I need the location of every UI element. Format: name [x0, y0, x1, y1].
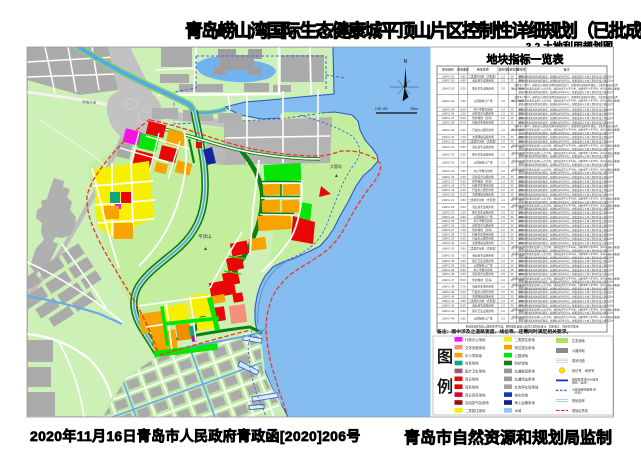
svg-text:1.0: 1.0	[501, 198, 505, 202]
svg-text:2.5: 2.5	[501, 99, 505, 103]
svg-text:200m: 200m	[410, 107, 418, 111]
svg-text:公园绿地与广场: 公园绿地与广场	[474, 215, 493, 219]
svg-text:25: 25	[511, 107, 514, 111]
svg-text:30: 30	[511, 184, 514, 188]
svg-text:行政办公用地: 行政办公用地	[465, 337, 486, 342]
svg-text:建筑退界满足相关规范要求，配建机动车停车位，配套设施与主体工: 建筑退界满足相关规范要求，配建机动车停车位，配套设施与主体工程同步设计建设交付	[518, 311, 614, 315]
svg-text:中小学用地: 中小学用地	[465, 353, 483, 358]
svg-text:排水用地: 排水用地	[515, 392, 529, 397]
svg-text:9.70: 9.70	[460, 184, 466, 188]
svg-text:文化设施用地: 文化设施用地	[465, 345, 486, 350]
svg-text:N: N	[404, 59, 408, 65]
svg-text:建筑退界满足相关规范要求，配建机动车停车位，配套设施与主体工: 建筑退界满足相关规范要求，配建机动车停车位，配套设施与主体工程同步设计建设交付	[518, 188, 614, 192]
svg-text:建筑退界满足相关规范要求，配建机动车停车位，配套设施与主体工: 建筑退界满足相关规范要求，配建机动车停车位，配套设施与主体工程同步设计建设交付	[518, 295, 614, 299]
svg-text:医疗卫生设施用地: 医疗卫生设施用地	[472, 152, 494, 156]
svg-text:中小学教育用地: 中小学教育用地	[474, 169, 493, 173]
svg-text:例: 例	[437, 378, 453, 396]
svg-text:LSW-C-39: LSW-C-39	[442, 290, 455, 294]
svg-text:医疗卫生设施用地: 医疗卫生设施用地	[472, 309, 494, 313]
svg-text:1.5: 1.5	[501, 303, 505, 307]
svg-text:建筑退界满足相关规范要求，配建机动车停车位，配套设施与主体工: 建筑退界满足相关规范要求，配建机动车停车位，配套设施与主体工程同步设计建设交付	[518, 290, 614, 294]
svg-text:建筑退界满足相关规范要求，配建机动车停车位，配套设施与主体工: 建筑退界满足相关规范要求，配建机动车停车位，配套设施与主体工程同步设计建设交付	[518, 224, 614, 228]
svg-text:30: 30	[511, 112, 514, 116]
svg-text:25: 25	[511, 299, 514, 303]
svg-text:商住混合功能用地: 商住混合功能用地	[472, 112, 494, 116]
svg-text:2.70: 2.70	[460, 285, 466, 289]
svg-text:建筑退界满足相关规范要求，配建机动车停车位，配套设施与主体工: 建筑退界满足相关规范要求，配建机动车停车位，配套设施与主体工程同步设计建设交付	[518, 116, 614, 120]
svg-text:LSW-C-34: LSW-C-34	[442, 264, 455, 268]
svg-text:建筑退界满足相关规范要求，配建机动车停车位，配套设施与主体工: 建筑退界满足相关规范要求，配建机动车停车位，配套设施与主体工程同步设计建设交付	[518, 249, 614, 253]
svg-text:地块编码: 地块编码	[442, 67, 454, 72]
svg-text:交通场站设施用地: 交通场站设施用地	[472, 241, 494, 245]
svg-text:2.0: 2.0	[501, 116, 505, 120]
svg-text:20: 20	[511, 135, 514, 139]
svg-text:4.50: 4.50	[460, 79, 466, 83]
svg-text:建筑退界满足相关规范要求，配建机动车停车位，配套设施与主体工: 建筑退界满足相关规范要求，配建机动车停车位，配套设施与主体工程同步设计建设交付	[518, 255, 614, 259]
svg-text:LSW-C-41: LSW-C-41	[442, 299, 455, 303]
svg-text:建筑退界满足相关规范要求，配建机动车停车位，配套设施与主体工: 建筑退界满足相关规范要求，配建机动车停车位，配套设施与主体工程同步设计建设交付	[518, 131, 614, 135]
svg-text:2.0: 2.0	[501, 309, 505, 313]
svg-text:2.0: 2.0	[501, 140, 505, 144]
svg-text:规划区界线: 规划区界线	[572, 408, 589, 413]
svg-text:1.5: 1.5	[501, 241, 505, 245]
svg-text:商业商务用地: 商业商务用地	[465, 392, 486, 397]
svg-text:水域: 水域	[515, 408, 522, 413]
svg-text:LSW-C-19: LSW-C-19	[442, 188, 455, 192]
svg-text:3.80: 3.80	[460, 247, 466, 251]
svg-text:LSW-C-04: LSW-C-04	[442, 99, 455, 103]
svg-text:25: 25	[511, 140, 514, 144]
svg-text:4.40: 4.40	[460, 188, 466, 192]
svg-text:行政办公服务用地: 行政办公服务用地	[472, 237, 494, 241]
svg-text:1.20: 1.20	[460, 211, 466, 215]
svg-text:9.60: 9.60	[460, 268, 466, 272]
svg-text:LSW-C-03: LSW-C-03	[442, 87, 455, 91]
svg-text:20: 20	[511, 116, 514, 120]
svg-text:滨海大道: 滨海大道	[82, 99, 97, 105]
svg-text:2.5: 2.5	[501, 175, 505, 179]
svg-text:容积率上限2.0，建筑退让道路红线距离按规范执行，配套服务设: 容积率上限2.0，建筑退让道路红线距离按规范执行，配套服务设施同步建设，沿街界面…	[514, 95, 618, 99]
svg-text:社会停车场库用地: 社会停车场库用地	[472, 184, 494, 188]
svg-text:建筑退界满足相关规范要求，配建机动车停车位，配套设施与主体工: 建筑退界满足相关规范要求，配建机动车停车位，配套设施与主体工程同步设计建设交付	[518, 107, 614, 111]
svg-text:容积率上限2.0，建筑退让道路红线距离按规范执行，配套服务设: 容积率上限2.0，建筑退让道路红线距离按规范执行，配套服务设施同步建设，沿街界面…	[514, 83, 618, 87]
svg-text:20: 20	[511, 74, 514, 78]
svg-text:建筑退界满足相关规范要求，配建机动车停车位，配套设施与主体工: 建筑退界满足相关规范要求，配建机动车停车位，配套设施与主体工程同步设计建设交付	[518, 112, 614, 116]
svg-text:规划驳岸: 规划驳岸	[572, 398, 586, 403]
svg-text:建筑退界满足相关规范要求，配建机动车停车位，配套设施与主体工: 建筑退界满足相关规范要求，配建机动车停车位，配套设施与主体工程同步设计建设交付	[518, 259, 614, 263]
svg-text:1.5: 1.5	[501, 224, 505, 228]
svg-text:8.50: 8.50	[460, 303, 466, 307]
svg-text:海上运输用地: 海上运输用地	[515, 400, 536, 405]
svg-text:商住混合功能用地: 商住混合功能用地	[472, 224, 494, 228]
svg-text:建筑退界满足相关规范要求，配建机动车停车位，配套设施与主体工: 建筑退界满足相关规范要求，配建机动车停车位，配套设施与主体工程同步设计建设交付	[518, 299, 614, 303]
svg-text:平顶山: 平顶山	[198, 233, 212, 240]
svg-text:25: 25	[511, 237, 514, 241]
svg-text:3.90: 3.90	[460, 161, 466, 165]
svg-text:防护绿地: 防护绿地	[515, 361, 529, 366]
svg-text:2.5: 2.5	[501, 272, 505, 276]
svg-text:6.40: 6.40	[460, 290, 466, 294]
svg-text:1.0: 1.0	[501, 107, 505, 111]
svg-text:建筑退界满足相关规范要求，配建机动车停车位，配套设施与主体工: 建筑退界满足相关规范要求，配建机动车停车位，配套设施与主体工程同步设计建设交付	[518, 90, 614, 94]
svg-text:建筑退界满足相关规范要求，配建机动车停车位，配套设施与主体工: 建筑退界满足相关规范要求，配建机动车停车位，配套设施与主体工程同步设计建设交付	[518, 175, 614, 179]
svg-text:8.00: 8.00	[460, 278, 466, 282]
svg-text:防护绿地（滨海）: 防护绿地（滨海）	[472, 278, 494, 282]
svg-text:1.0: 1.0	[501, 152, 505, 156]
svg-text:2.0: 2.0	[501, 87, 505, 91]
svg-text:建筑退界满足相关规范要求，配建机动车停车位，配套设施与主体工: 建筑退界满足相关规范要求，配建机动车停车位，配套设施与主体工程同步设计建设交付	[518, 241, 614, 245]
svg-text:LSW-C-01: LSW-C-01	[442, 74, 455, 78]
svg-text:社会停车场库用地: 社会停车场库用地	[472, 121, 494, 125]
svg-text:30: 30	[511, 215, 514, 219]
svg-text:30: 30	[511, 241, 514, 245]
svg-text:LSW-C-08: LSW-C-08	[442, 121, 455, 125]
svg-text:3.30: 3.30	[460, 224, 466, 228]
svg-text:1.70: 1.70	[460, 232, 466, 236]
svg-text:公园绿地与广场: 公园绿地与广场	[474, 264, 493, 268]
svg-text:2.0: 2.0	[501, 247, 505, 251]
svg-text:社会停车场库用地: 社会停车场库用地	[472, 285, 494, 289]
svg-text:建筑退界满足相关规范要求，配建机动车停车位，配套设施与主体工: 建筑退界满足相关规范要求，配建机动车停车位，配套设施与主体工程同步设计建设交付	[518, 154, 614, 158]
svg-text:加油加气站用地: 加油加气站用地	[465, 400, 489, 405]
svg-text:1.0: 1.0	[501, 237, 505, 241]
svg-text:建筑退界满足相关规范要求，配建机动车停车位，配套设施与主体工: 建筑退界满足相关规范要求，配建机动车停车位，配套设施与主体工程同步设计建设交付	[518, 219, 614, 223]
svg-text:4.90: 4.90	[460, 215, 466, 219]
svg-text:建筑退界满足相关规范要求，配建机动车停车位，配套设施与主体工: 建筑退界满足相关规范要求，配建机动车停车位，配套设施与主体工程同步设计建设交付	[518, 102, 614, 106]
svg-text:LSW-C-06: LSW-C-06	[442, 112, 455, 116]
svg-text:LSW-C-09: LSW-C-09	[442, 128, 455, 132]
svg-text:建筑退界满足相关规范要求，配建机动车停车位，配套设施与主体工: 建筑退界满足相关规范要求，配建机动车停车位，配套设施与主体工程同步设计建设交付	[518, 228, 614, 232]
svg-text:商务用地: 商务用地	[465, 384, 479, 389]
svg-text:建筑退界满足相关规范要求，配建机动车停车位，配套设施与主体工: 建筑退界满足相关规范要求，配建机动车停车位，配套设施与主体工程同步设计建设交付	[518, 232, 614, 236]
svg-text:1.80: 1.80	[460, 140, 466, 144]
svg-text:LSW-C-23: LSW-C-23	[442, 211, 455, 215]
svg-text:8.10: 8.10	[460, 193, 466, 197]
svg-text:25: 25	[511, 79, 514, 83]
svg-text:LSW-C-35: LSW-C-35	[442, 268, 455, 272]
svg-text:30: 30	[511, 228, 514, 232]
svg-text:LSW-C-13: LSW-C-13	[442, 152, 455, 156]
svg-text:建筑退界满足相关规范要求，配建机动车停车位，配套设施与主体工: 建筑退界满足相关规范要求，配建机动车停车位，配套设施与主体工程同步设计建设交付	[518, 207, 614, 211]
svg-text:建筑退界满足相关规范要求，配建机动车停车位，配套设施与主体工: 建筑退界满足相关规范要求，配建机动车停车位，配套设施与主体工程同步设计建设交付	[518, 211, 614, 215]
svg-text:7.10: 7.10	[460, 135, 466, 139]
svg-text:防护绿地（滨海）: 防护绿地（滨海）	[472, 179, 494, 183]
svg-text:交通场站设施用地: 交通场站设施用地	[472, 193, 494, 197]
svg-text:大管岛: 大管岛	[330, 163, 342, 169]
svg-text:LSW-C-28: LSW-C-28	[442, 232, 455, 236]
svg-text:4.30: 4.30	[460, 272, 466, 276]
svg-text:建筑退界满足相关规范要求，配建机动车停车位，配套设施与主体工: 建筑退界满足相关规范要求，配建机动车停车位，配套设施与主体工程同步设计建设交付	[518, 303, 614, 307]
svg-text:行政办公服务用地: 行政办公服务用地	[472, 290, 494, 294]
svg-text:LSW-C-21: LSW-C-21	[442, 198, 455, 202]
svg-text:二类居住用地（含配套）: 二类居住用地（含配套）	[468, 247, 498, 251]
svg-text:LSW-C-14: LSW-C-14	[442, 161, 455, 165]
svg-text:LSW-C-11: LSW-C-11	[442, 140, 455, 144]
svg-text:LSW-C-38: LSW-C-38	[442, 285, 455, 289]
svg-text:医疗卫生设施用地: 医疗卫生设施用地	[472, 87, 494, 91]
svg-text:LSW-C-25: LSW-C-25	[442, 219, 455, 223]
svg-text:交通枢纽用地: 交通枢纽用地	[515, 369, 536, 374]
svg-text:用地面积: 用地面积	[457, 67, 469, 72]
svg-text:商业用地: 商业用地	[465, 377, 479, 382]
svg-text:2.5: 2.5	[501, 145, 505, 149]
svg-text:LSW-C-42: LSW-C-42	[442, 303, 455, 307]
svg-text:防护绿地（滨海）: 防护绿地（滨海）	[472, 228, 494, 232]
svg-text:生态绿地: 生态绿地	[572, 338, 586, 343]
svg-text:1.30: 1.30	[460, 112, 466, 116]
svg-text:绿地率: 绿地率	[517, 67, 526, 72]
svg-text:2.90: 2.90	[460, 99, 466, 103]
svg-text:地块内配建社区服务设施与公共空间，建筑高度不大于24米，绿地: 地块内配建社区服务设施与公共空间，建筑高度不大于24米，绿地率不小于30%，停车…	[512, 99, 620, 103]
svg-text:（示意）: （示意）	[572, 390, 584, 395]
svg-text:中小学教育用地: 中小学教育用地	[474, 219, 493, 223]
svg-text:2.5: 2.5	[501, 193, 505, 197]
svg-text:9.10: 9.10	[460, 241, 466, 245]
svg-text:商业商务设施用地: 商业商务设施用地	[472, 254, 494, 258]
svg-text:LSW-C-30: LSW-C-30	[442, 241, 455, 245]
svg-text:1.0: 1.0	[501, 299, 505, 303]
svg-text:2.5: 2.5	[501, 317, 505, 321]
svg-text:7.50: 7.50	[460, 254, 466, 258]
svg-text:防护绿地（滨海）: 防护绿地（滨海）	[472, 116, 494, 120]
svg-text:20: 20	[511, 264, 514, 268]
svg-text:社会停车场用地: 社会停车场用地	[515, 384, 539, 389]
svg-text:建筑退界满足相关规范要求，配建机动车停车位，配套设施与主体工: 建筑退界满足相关规范要求，配建机动车停车位，配套设施与主体工程同步设计建设交付	[518, 319, 614, 323]
svg-text:建筑退界满足相关规范要求，配建机动车停车位，配套设施与主体工: 建筑退界满足相关规范要求，配建机动车停车位，配套设施与主体工程同步设计建设交付	[518, 79, 614, 83]
svg-text:3.20: 3.20	[460, 309, 466, 313]
svg-text:25: 25	[511, 224, 514, 228]
svg-text:LSW-C-24: LSW-C-24	[442, 215, 455, 219]
svg-text:建筑退界满足相关规范要求，配建机动车停车位，配套设施与主体工: 建筑退界满足相关规范要求，配建机动车停车位，配套设施与主体工程同步设计建设交付	[518, 74, 614, 78]
svg-text:二类居住用地（含配套）: 二类居住用地（含配套）	[468, 198, 498, 202]
svg-text:2.5: 2.5	[501, 254, 505, 258]
svg-text:20: 20	[511, 188, 514, 192]
svg-text:LSW-C-16: LSW-C-16	[442, 175, 455, 179]
svg-text:交通场站设施用地: 交通场站设施用地	[472, 295, 494, 299]
svg-text:6.50: 6.50	[460, 205, 466, 209]
svg-text:公路用地: 公路用地	[572, 348, 586, 353]
svg-text:2.0: 2.0	[501, 268, 505, 272]
svg-text:5.50: 5.50	[460, 145, 466, 149]
svg-text:各地块具体指标以规划条件为准，相关配套设施与主体工程同步设计: 各地块具体指标以规划条件为准，相关配套设施与主体工程同步设计、同步施工、同步交付…	[466, 325, 579, 329]
svg-text:30: 30	[511, 290, 514, 294]
svg-text:1.0: 1.0	[501, 259, 505, 263]
svg-text:5.40: 5.40	[460, 237, 466, 241]
svg-text:8.20: 8.20	[460, 87, 466, 91]
svg-text:LSW-C-29: LSW-C-29	[442, 237, 455, 241]
svg-text:2.80: 2.80	[460, 198, 466, 202]
svg-text:容积率上限2.0，建筑退让道路红线距离按规范执行，配套服务设: 容积率上限2.0，建筑退让道路红线距离按规范执行，配套服务设施同步建设，沿街界面…	[514, 124, 618, 128]
svg-text:商业商务设施用地: 商业商务设施用地	[472, 145, 494, 149]
svg-text:建筑退界满足相关规范要求，配建机动车停车位，配套设施与主体工: 建筑退界满足相关规范要求，配建机动车停车位，配套设施与主体工程同步设计建设交付	[518, 147, 614, 151]
svg-text:二类居住用地（含配套）: 二类居住用地（含配套）	[468, 140, 498, 144]
svg-text:1.5: 1.5	[501, 135, 505, 139]
svg-text:LSW-C-18: LSW-C-18	[442, 184, 455, 188]
svg-text:公园绿地与广场: 公园绿地与广场	[474, 161, 493, 165]
svg-text:20: 20	[511, 175, 514, 179]
svg-text:1.0: 1.0	[501, 128, 505, 132]
svg-text:图: 图	[437, 349, 453, 366]
svg-text:LSW-C-05: LSW-C-05	[442, 107, 455, 111]
svg-text:行政办公服务用地: 行政办公服务用地	[472, 188, 494, 192]
svg-text:1.5: 1.5	[501, 184, 505, 188]
svg-text:25: 25	[511, 268, 514, 272]
svg-text:2.5: 2.5	[501, 232, 505, 236]
svg-text:商住混合用地: 商住混合用地	[515, 345, 536, 350]
svg-text:建筑退界满足相关规范要求，配建机动车停车位，配套设施与主体工: 建筑退界满足相关规范要求，配建机动车停车位，配套设施与主体工程同步设计建设交付	[518, 179, 614, 183]
svg-text:LSW-C-37: LSW-C-37	[442, 278, 455, 282]
svg-text:交通场站设施用地: 交通场站设施用地	[472, 135, 494, 139]
svg-text:25: 25	[511, 211, 514, 215]
svg-text:1.5: 1.5	[501, 205, 505, 209]
svg-text:地块内配建社区服务设施与公共空间，建筑高度不大于24米，绿地: 地块内配建社区服务设施与公共空间，建筑高度不大于24米，绿地率不小于30%，停车…	[512, 128, 620, 132]
svg-text:备注: 备注	[563, 67, 569, 72]
svg-text:LSW-C-12: LSW-C-12	[442, 145, 455, 149]
svg-text:建筑退界满足相关规范要求，配建机动车停车位，配套设施与主体工: 建筑退界满足相关规范要求，配建机动车停车位，配套设施与主体工程同步设计建设交付	[518, 272, 614, 276]
svg-text:1.5: 1.5	[501, 161, 505, 165]
svg-text:建筑退界满足相关规范要求，配建机动车停车位，配套设施与主体工: 建筑退界满足相关规范要求，配建机动车停车位，配套设施与主体工程同步设计建设交付	[518, 171, 614, 175]
svg-text:6.90: 6.90	[460, 317, 466, 321]
svg-text:LSW-C-20: LSW-C-20	[442, 193, 455, 197]
svg-text:0.80: 0.80	[460, 74, 466, 78]
svg-text:医疗卫生设施用地: 医疗卫生设施用地	[472, 259, 494, 263]
svg-text:6.60: 6.60	[460, 107, 466, 111]
svg-text:LSW-C-22: LSW-C-22	[442, 205, 455, 209]
svg-text:商业商务设施用地: 商业商务设施用地	[472, 303, 494, 307]
svg-text:2.5: 2.5	[501, 121, 505, 125]
svg-text:建筑退界满足相关规范要求，配建机动车停车位，配套设施与主体工: 建筑退界满足相关规范要求，配建机动车停车位，配套设施与主体工程同步设计建设交付	[518, 280, 614, 284]
svg-text:20: 20	[511, 219, 514, 223]
svg-text:1.5: 1.5	[501, 79, 505, 83]
svg-text:7.60: 7.60	[460, 169, 466, 173]
svg-text:备注：图中涉及之道路宽度、线位等，还需同时满足相关要求。: 备注：图中涉及之道路宽度、线位等，还需同时满足相关要求。	[436, 328, 571, 335]
svg-text:LSW-C-43: LSW-C-43	[442, 309, 455, 313]
svg-text:▲: ▲	[334, 173, 339, 179]
svg-text:5.00: 5.00	[460, 116, 466, 120]
svg-text:LSW-C-36: LSW-C-36	[442, 272, 455, 276]
svg-text:2.0: 2.0	[501, 188, 505, 192]
svg-text:公园绿地与广场: 公园绿地与广场	[474, 317, 493, 321]
svg-text:LSW-C-40: LSW-C-40	[442, 295, 455, 299]
svg-text:建筑退界满足相关规范要求，配建机动车停车位，配套设施与主体工: 建筑退界满足相关规范要求，配建机动车停车位，配套设施与主体工程同步设计建设交付	[518, 193, 614, 197]
svg-text:6.00: 6.00	[460, 179, 466, 183]
svg-text:1.0: 1.0	[501, 179, 505, 183]
svg-text:25: 25	[511, 179, 514, 183]
svg-text:LSW-C-31: LSW-C-31	[442, 247, 455, 251]
svg-text:商业商务设施用地: 商业商务设施用地	[472, 79, 494, 83]
svg-text:公园绿地: 公园绿地	[515, 353, 529, 358]
svg-text:8.60: 8.60	[460, 219, 466, 223]
svg-text:建筑退界满足相关规范要求，配建机动车停车位，配套设施与主体工: 建筑退界满足相关规范要求，配建机动车停车位，配套设施与主体工程同步设计建设交付	[518, 121, 614, 125]
svg-text:2.20: 2.20	[460, 259, 466, 263]
svg-text:建筑退界满足相关规范要求，配建机动车停车位，配套设施与主体工: 建筑退界满足相关规范要求，配建机动车停车位，配套设施与主体工程同步设计建设交付	[518, 286, 614, 290]
svg-text:2.5: 2.5	[501, 295, 505, 299]
svg-text:地块指标一览表: 地块指标一览表	[487, 52, 565, 66]
svg-text:LSW-C-17: LSW-C-17	[442, 179, 455, 183]
svg-text:▲: ▲	[203, 246, 208, 252]
svg-text:30: 30	[511, 272, 514, 276]
svg-text:LSW-C-07: LSW-C-07	[442, 116, 455, 120]
svg-text:商住混合功能用地: 商住混合功能用地	[472, 272, 494, 276]
svg-text:岸线（蓝线）: 岸线（蓝线）	[572, 380, 589, 385]
svg-text:公园绿地与广场: 公园绿地与广场	[474, 99, 493, 103]
svg-text:9.20: 9.20	[460, 152, 466, 156]
svg-text:2.5: 2.5	[501, 215, 505, 219]
svg-text:1.5: 1.5	[501, 112, 505, 116]
svg-text:2.0: 2.0	[501, 228, 505, 232]
svg-text:30: 30	[511, 303, 514, 307]
svg-text:地块内配建社区服务设施与公共空间，建筑高度不大于24米，绿地: 地块内配建社区服务设施与公共空间，建筑高度不大于24米，绿地率不小于30%，停车…	[512, 87, 620, 91]
svg-text:社会停车场库用地: 社会停车场库用地	[472, 232, 494, 236]
svg-text:LSW-C-27: LSW-C-27	[442, 228, 455, 232]
svg-text:街坊号、地块号: 街坊号、地块号	[572, 368, 594, 373]
svg-text:30: 30	[511, 259, 514, 263]
svg-text:LSW-C-02: LSW-C-02	[442, 79, 455, 83]
svg-text:商业商务设施用地: 商业商务设施用地	[472, 205, 494, 209]
svg-text:建筑退界满足相关规范要求，配建机动车停车位，配套设施与主体工: 建筑退界满足相关规范要求，配建机动车停车位，配套设施与主体工程同步设计建设交付	[518, 268, 614, 272]
svg-text:2.0: 2.0	[501, 290, 505, 294]
svg-text:3.40: 3.40	[460, 128, 466, 132]
svg-text:2.0: 2.0	[501, 169, 505, 173]
svg-text:8.70: 8.70	[460, 121, 466, 125]
svg-text:LSW-C-32: LSW-C-32	[442, 254, 455, 258]
svg-text:行政办公服务用地: 行政办公服务用地	[472, 128, 494, 132]
svg-text:1.0: 1.0	[501, 219, 505, 223]
svg-text:建筑退界满足相关规范要求，配建机动车停车位，配套设施与主体工: 建筑退界满足相关规范要求，配建机动车停车位，配套设施与主体工程同步设计建设交付	[518, 184, 614, 188]
svg-text:LSW-C-15: LSW-C-15	[442, 169, 455, 173]
svg-text:体育用地: 体育用地	[465, 361, 479, 366]
svg-text:交通场站用地: 交通场站用地	[515, 377, 536, 382]
svg-text:20: 20	[511, 295, 514, 299]
svg-text:1.5: 1.5	[501, 285, 505, 289]
svg-text:25: 25	[511, 193, 514, 197]
svg-text:7.00: 7.00	[460, 228, 466, 232]
svg-text:建筑退界满足相关规范要求，配建机动车停车位，配套设施与主体工: 建筑退界满足相关规范要求，配建机动车停车位，配套设施与主体工程同步设计建设交付	[518, 140, 614, 144]
svg-text:医疗卫生设施用地: 医疗卫生设施用地	[472, 211, 494, 215]
svg-text:LSW-C-26: LSW-C-26	[442, 224, 455, 228]
svg-text:2.30: 2.30	[460, 175, 466, 179]
svg-text:25: 25	[511, 121, 514, 125]
svg-text:商住混合功能用地: 商住混合功能用地	[472, 175, 494, 179]
svg-text:建筑退界满足相关规范要求，配建机动车停车位，配套设施与主体工: 建筑退界满足相关规范要求，配建机动车停车位，配套设施与主体工程同步设计建设交付	[518, 135, 614, 139]
svg-text:LSW-C-33: LSW-C-33	[442, 259, 455, 263]
svg-text:LSW-C-10: LSW-C-10	[442, 135, 455, 139]
svg-text:建筑退界满足相关规范要求，配建机动车停车位，配套设施与主体工: 建筑退界满足相关规范要求，配建机动车停车位，配套设施与主体工程同步设计建设交付	[518, 237, 614, 241]
svg-text:4.80: 4.80	[460, 299, 466, 303]
svg-text:1.0: 1.0	[501, 278, 505, 282]
svg-text:中小学教育用地: 中小学教育用地	[474, 268, 493, 272]
svg-text:1.5: 1.5	[501, 264, 505, 268]
svg-text:建筑退界满足相关规范要求，配建机动车停车位，配套设施与主体工: 建筑退界满足相关规范要求，配建机动车停车位，配套设施与主体工程同步设计建设交付	[518, 215, 614, 219]
svg-text:现状河道: 现状河道	[572, 358, 586, 363]
svg-text:建筑退界满足相关规范要求，配建机动车停车位，配套设施与主体工: 建筑退界满足相关规范要求，配建机动车停车位，配套设施与主体工程同步设计建设交付	[518, 162, 614, 166]
svg-text:0 50 100: 0 50 100	[375, 107, 388, 111]
svg-text:二类居住用地（含配套）: 二类居住用地（含配套）	[468, 299, 498, 303]
svg-text:二类居住用地（含配套）: 二类居住用地（含配套）	[468, 74, 498, 78]
svg-text:20: 20	[511, 232, 514, 236]
svg-text:中小学教育用地: 中小学教育用地	[474, 107, 493, 111]
svg-text:1.10: 1.10	[460, 295, 466, 299]
svg-text:建筑退界满足相关规范要求，配建机动车停车位，配套设施与主体工: 建筑退界满足相关规范要求，配建机动车停车位，配套设施与主体工程同步设计建设交付	[518, 200, 614, 204]
svg-text:1.0: 1.0	[501, 74, 505, 78]
svg-text:建筑退界满足相关规范要求，配建机动车停车位，配套设施与主体工: 建筑退界满足相关规范要求，配建机动车停车位，配套设施与主体工程同步设计建设交付	[518, 264, 614, 268]
svg-text:二类居住用地: 二类居住用地	[515, 337, 536, 342]
svg-text:LSW-C-44: LSW-C-44	[442, 317, 455, 321]
svg-text:2.0: 2.0	[501, 211, 505, 215]
svg-text:二类居住用地: 二类居住用地	[465, 408, 486, 413]
svg-text:医疗卫生用地: 医疗卫生用地	[465, 369, 486, 374]
svg-text:用地性质: 用地性质	[477, 67, 489, 72]
